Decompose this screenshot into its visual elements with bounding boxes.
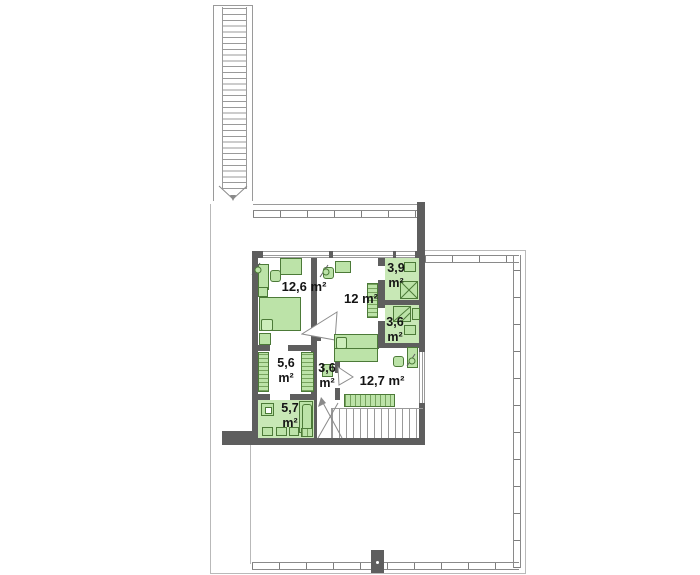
walkway-railing [253,210,419,218]
room-label-bedroom-right: 12,7 m² [351,373,413,388]
terrace-railing-top [425,255,519,263]
lamp-icon [318,263,330,279]
terrace-railing-right [513,255,521,568]
terrace-railing-bottom [252,562,519,570]
site-outline-bottom [210,573,526,574]
room-label-bedroom-left: 12,6 m² [270,279,338,294]
window [396,251,415,258]
wardrobe [280,258,302,275]
room-label-bathroom-right: 3,6 m² [381,315,409,345]
stair-direction-arrow-icon [314,395,346,440]
wall-bottom-left-step [222,431,258,445]
sofa [344,394,395,407]
pillow [261,319,273,331]
toilet [412,308,420,320]
washing-machine [261,403,274,416]
room-label-bedroom-middle: 12 m² [330,291,392,306]
wardrobe [301,352,314,392]
site-outline-left [210,204,211,574]
stairs-down-arrow-icon [215,185,251,202]
window [333,251,393,258]
room-label-bathroom-top: 3,9 m² [382,261,410,291]
floor-plan: 12,6 m² 12 m² 3,9 m² 3,6 m² 5,6 m² 3,6 m… [0,0,700,575]
room-label-hallway: 3,6 m² [314,361,340,391]
armchair [393,356,404,367]
post-marker-icon [376,561,379,564]
exterior-staircase [213,5,253,201]
walkway-post [417,202,425,254]
room-label-bathroom-bottom: 5,7 m² [276,401,304,431]
site-outline-top [425,250,526,251]
bed [334,334,378,362]
stair-treads [222,7,247,189]
pillow [336,337,347,349]
nightstand [258,287,268,297]
lamp-icon [250,261,262,277]
desk [335,261,351,273]
terrace-post [371,550,384,573]
lamp-icon [405,352,417,368]
terrace-inner-line [250,445,251,564]
wardrobe [258,352,269,392]
site-outline-right [525,250,526,574]
window [419,352,425,403]
washer-door-icon [265,407,272,414]
nightstand [259,333,271,345]
room-label-wardrobe-room: 5,6 m² [272,356,300,386]
toilet [262,427,273,436]
window [263,251,329,258]
walkway-edge-line [253,204,425,205]
wall-interior [252,345,270,351]
bed [259,297,301,331]
